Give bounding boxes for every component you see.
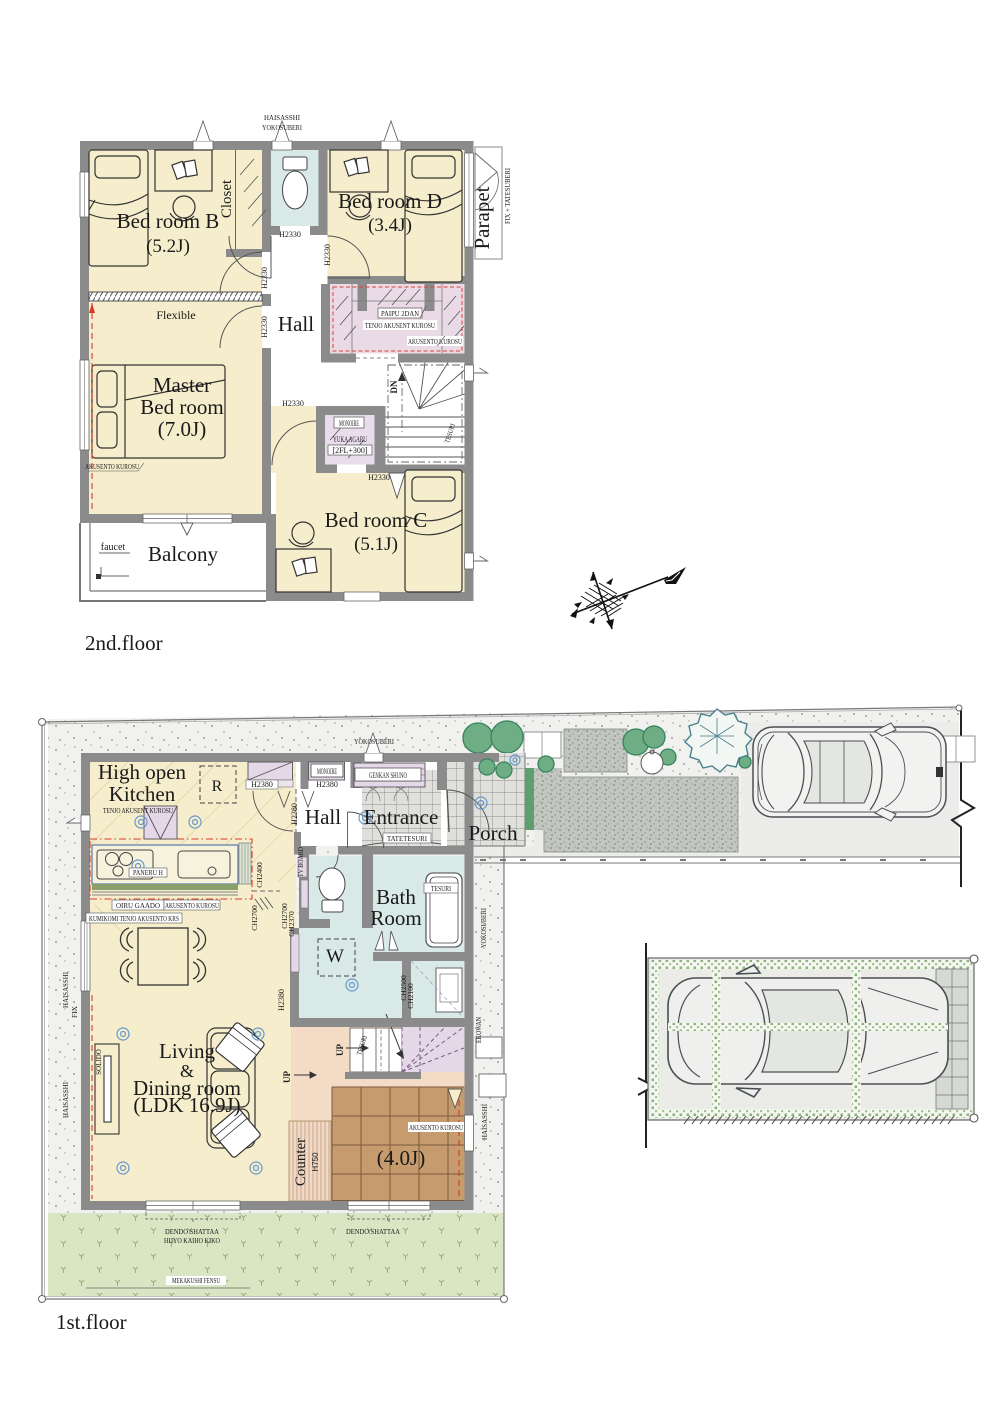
svg-text:Balcony: Balcony	[148, 542, 218, 566]
svg-text:Hall: Hall	[278, 312, 314, 336]
svg-text:(5.2J): (5.2J)	[146, 236, 190, 257]
svg-text:MONOIRE: MONOIRE	[339, 419, 359, 428]
svg-text:AKUSENTO KUROSU: AKUSENTO KUROSU	[409, 1123, 463, 1132]
svg-text:H2330: H2330	[282, 399, 304, 408]
svg-text:HAISASSHI: HAISASSHI	[480, 1104, 489, 1140]
svg-text:(3.4J): (3.4J)	[368, 215, 412, 236]
svg-text:H2330: H2330	[368, 473, 390, 482]
svg-text:Bed room B: Bed room B	[117, 209, 220, 233]
svg-text:H2380: H2380	[290, 803, 299, 825]
svg-text:HIJYO KAIHO KIKO: HIJYO KAIHO KIKO	[164, 1236, 220, 1245]
svg-text:TENJO AKUSENT KUROSU: TENJO AKUSENT KUROSU	[365, 321, 435, 330]
svg-text:TENJO AKUSENT KUROSU: TENJO AKUSENT KUROSU	[103, 806, 173, 815]
svg-text:TATETESURI: TATETESURI	[387, 834, 427, 843]
svg-text:YOKOSUBERI: YOKOSUBERI	[354, 737, 394, 746]
svg-text:FIX + TATESUBERI: FIX + TATESUBERI	[504, 167, 512, 224]
svg-text:Porch: Porch	[469, 821, 518, 845]
svg-text:AKUSENTO KUROSU: AKUSENTO KUROSU	[165, 901, 219, 910]
svg-text:TESURI: TESURI	[431, 884, 451, 893]
svg-text:AKUSENTO KUROSU: AKUSENTO KUROSU	[408, 337, 462, 346]
svg-text:Bed room C: Bed room C	[325, 508, 428, 532]
svg-text:YOKOSUBERI: YOKOSUBERI	[479, 908, 488, 948]
svg-text:YUKA AGARU: YUKA AGARU	[333, 435, 367, 444]
svg-text:(LDK 16.9J): (LDK 16.9J)	[133, 1093, 240, 1117]
svg-text:Hall: Hall	[305, 805, 341, 829]
svg-text:GENKAN SHUNO: GENKAN SHUNO	[369, 771, 407, 780]
svg-text:YOKOSUBERI: YOKOSUBERI	[262, 123, 302, 132]
svg-text:1st.floor: 1st.floor	[56, 1310, 127, 1334]
svg-text:KUMIKOMI TENJO AKUSENTO KRS: KUMIKOMI TENJO AKUSENTO KRS	[89, 914, 179, 923]
svg-text:Master: Master	[153, 373, 211, 397]
svg-text:W: W	[326, 946, 344, 967]
svg-text:FIX: FIX	[70, 1005, 79, 1018]
svg-text:Parapet: Parapet	[470, 186, 494, 249]
svg-text:Flexible: Flexible	[156, 308, 195, 322]
svg-text:H2330: H2330	[260, 316, 269, 338]
svg-text:R: R	[212, 778, 223, 795]
svg-text:[2FL+300]: [2FL+300]	[332, 446, 368, 455]
svg-text:TV BOARD: TV BOARD	[297, 847, 305, 877]
svg-text:SOLIDO: SOLIDO	[95, 1049, 103, 1075]
svg-text:CH2370: CH2370	[287, 911, 296, 937]
svg-text:High open: High open	[98, 760, 187, 784]
svg-text:H2330: H2330	[279, 230, 301, 239]
svg-text:AKUSENTO KUROSU: AKUSENTO KUROSU	[85, 463, 139, 471]
svg-text:UP: UP	[335, 1044, 345, 1056]
svg-text:2nd.floor: 2nd.floor	[85, 631, 163, 655]
svg-text:Living: Living	[159, 1039, 215, 1063]
svg-text:(7.0J): (7.0J)	[158, 417, 206, 441]
svg-text:(5.1J): (5.1J)	[354, 534, 398, 555]
svg-text:MONOIRE: MONOIRE	[317, 767, 337, 776]
svg-text:Kitchen: Kitchen	[109, 782, 176, 806]
svg-text:H2380: H2380	[277, 989, 286, 1011]
svg-text:MEKAKUSHI FENSU: MEKAKUSHI FENSU	[172, 1276, 220, 1285]
svg-text:PAIPU 2DAN: PAIPU 2DAN	[381, 309, 420, 318]
svg-text:Entrance: Entrance	[364, 805, 439, 829]
svg-text:CH2100: CH2100	[406, 983, 415, 1009]
svg-text:H2380: H2380	[316, 780, 338, 789]
svg-text:H2380: H2380	[251, 780, 273, 789]
svg-text:HAISASSHI: HAISASSHI	[264, 113, 300, 122]
svg-text:H750: H750	[311, 1152, 320, 1172]
svg-text:DN: DN	[389, 380, 399, 393]
svg-text:H2330: H2330	[323, 244, 332, 266]
svg-text:UP: UP	[282, 1071, 292, 1083]
svg-text:CH2400: CH2400	[255, 862, 264, 888]
svg-text:HAISASSHI: HAISASSHI	[61, 972, 70, 1008]
svg-text:OIRU GAADO: OIRU GAADO	[116, 901, 161, 910]
svg-text:Room: Room	[370, 906, 421, 930]
svg-text:CH2700: CH2700	[250, 905, 259, 931]
svg-text:EKOWAN: EKOWAN	[475, 1017, 483, 1043]
svg-text:Bed room D: Bed room D	[338, 189, 442, 213]
svg-text:faucet: faucet	[101, 542, 126, 553]
svg-text:Counter: Counter	[293, 1138, 309, 1186]
svg-text:DENDO SHATTAA: DENDO SHATTAA	[165, 1227, 219, 1236]
svg-text:Bed room: Bed room	[140, 395, 223, 419]
svg-text:HAISASSHI: HAISASSHI	[61, 1082, 70, 1118]
svg-text:(4.0J): (4.0J)	[377, 1146, 425, 1170]
svg-text:Closet: Closet	[219, 179, 235, 218]
svg-text:PANERU H: PANERU H	[133, 869, 163, 877]
svg-text:H2330: H2330	[260, 267, 269, 289]
svg-text:DENDO SHATTAA: DENDO SHATTAA	[346, 1227, 400, 1236]
